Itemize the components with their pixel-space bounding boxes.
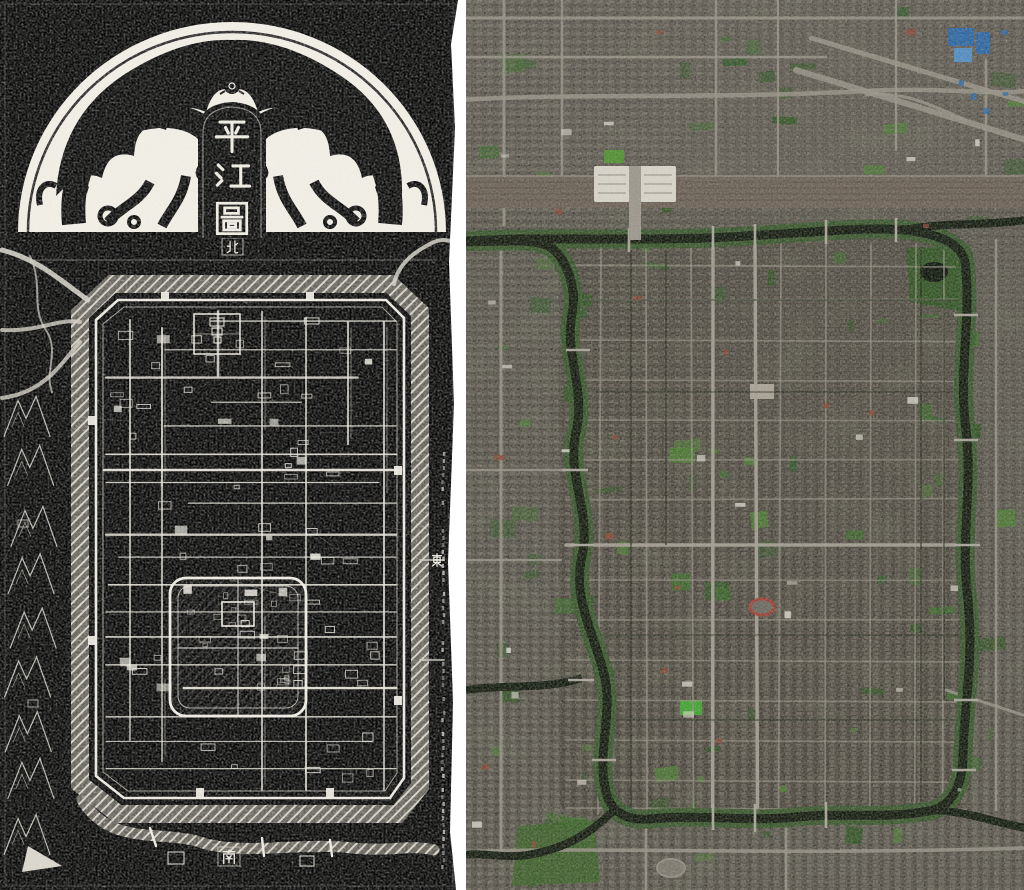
satellite-panel [466, 0, 1024, 890]
title-char-1: 平 [213, 113, 251, 157]
north-label-text: 北 [225, 241, 239, 257]
title-char-2: 江 [213, 155, 251, 199]
composite-image: 平 江 圖 北 南 東 [0, 0, 1024, 890]
stele-rubbing-panel: 平 江 圖 北 南 東 [0, 0, 458, 890]
south-label-text: 南 [222, 851, 236, 867]
image-grain [466, 0, 1024, 890]
east-label-text: 東 [430, 554, 444, 570]
title-char-3: 圖 [213, 197, 251, 241]
